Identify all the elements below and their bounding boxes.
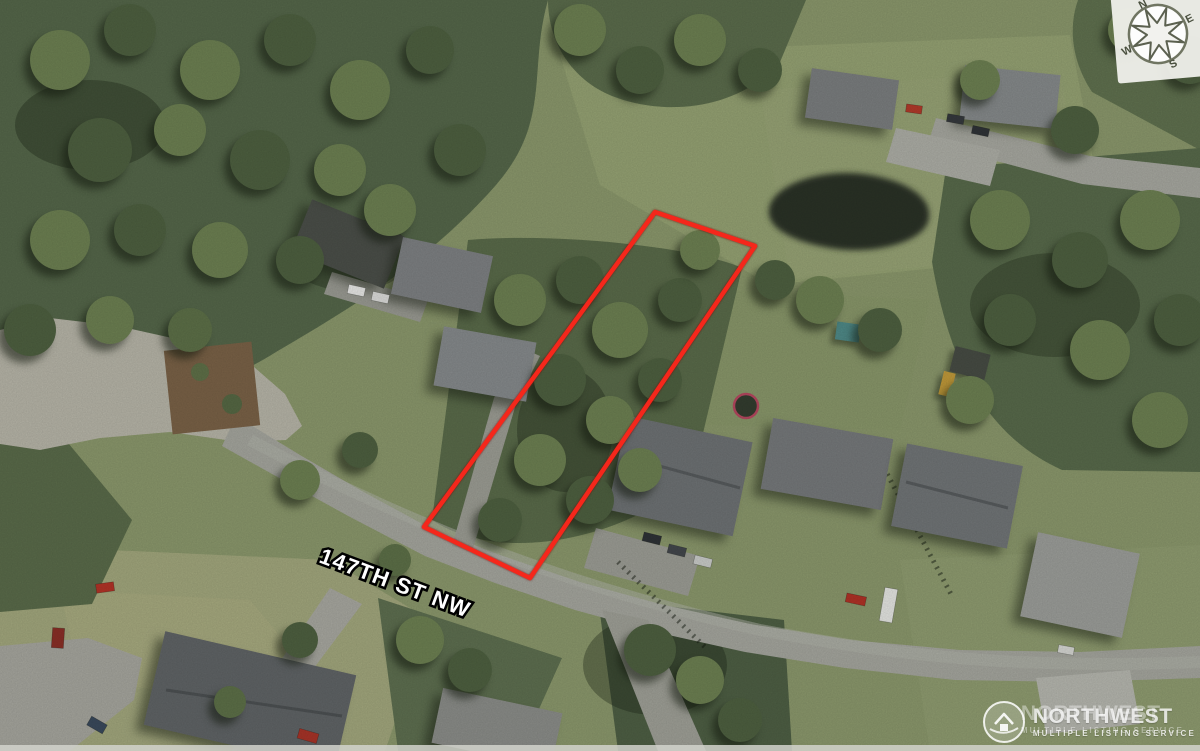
watermark-tagline: MULTIPLE LISTING SERVICE: [1033, 729, 1196, 738]
compass-rose: N E S W: [1104, 0, 1200, 88]
aerial-scene: 147TH ST NW N E S W: [0, 0, 1200, 751]
nwmls-watermark: NORTHWEST MULTIPLE LISTING SERVICE: [981, 699, 1196, 745]
nwmls-logo-icon: [981, 699, 1027, 745]
photo-grain: [0, 0, 1200, 751]
watermark-brand: NORTHWEST: [1033, 706, 1196, 727]
photo-bottom-edge: [0, 745, 1200, 751]
aerial-listing-photo: 147TH ST NW N E S W NORTHWEST MULTIPLE L…: [0, 0, 1200, 751]
